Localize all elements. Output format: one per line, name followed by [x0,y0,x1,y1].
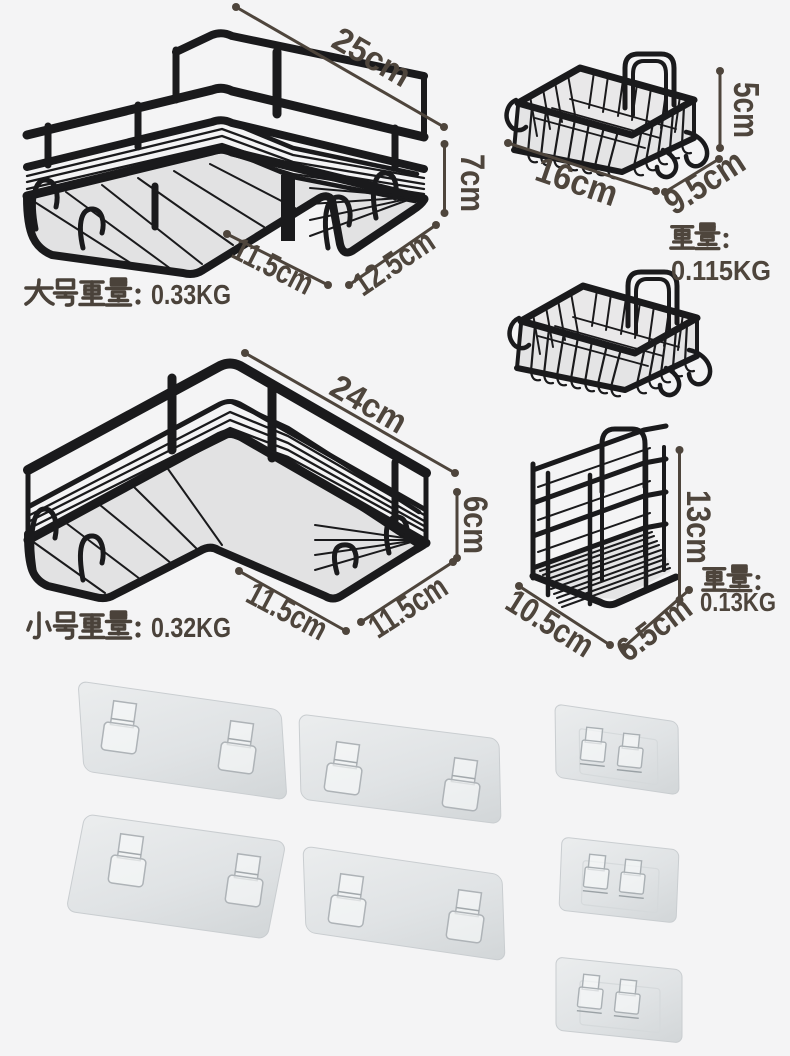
svg-text:7cm: 7cm [453,154,491,212]
svg-text:0.32KG: 0.32KG [151,612,231,643]
svg-text:0.13KG: 0.13KG [700,587,776,617]
svg-text:13cm: 13cm [679,490,717,564]
svg-text:6cm: 6cm [456,496,494,554]
svg-text:5cm: 5cm [726,82,767,138]
svg-text:0.115KG: 0.115KG [671,255,771,286]
svg-text:0.33KG: 0.33KG [151,279,231,310]
